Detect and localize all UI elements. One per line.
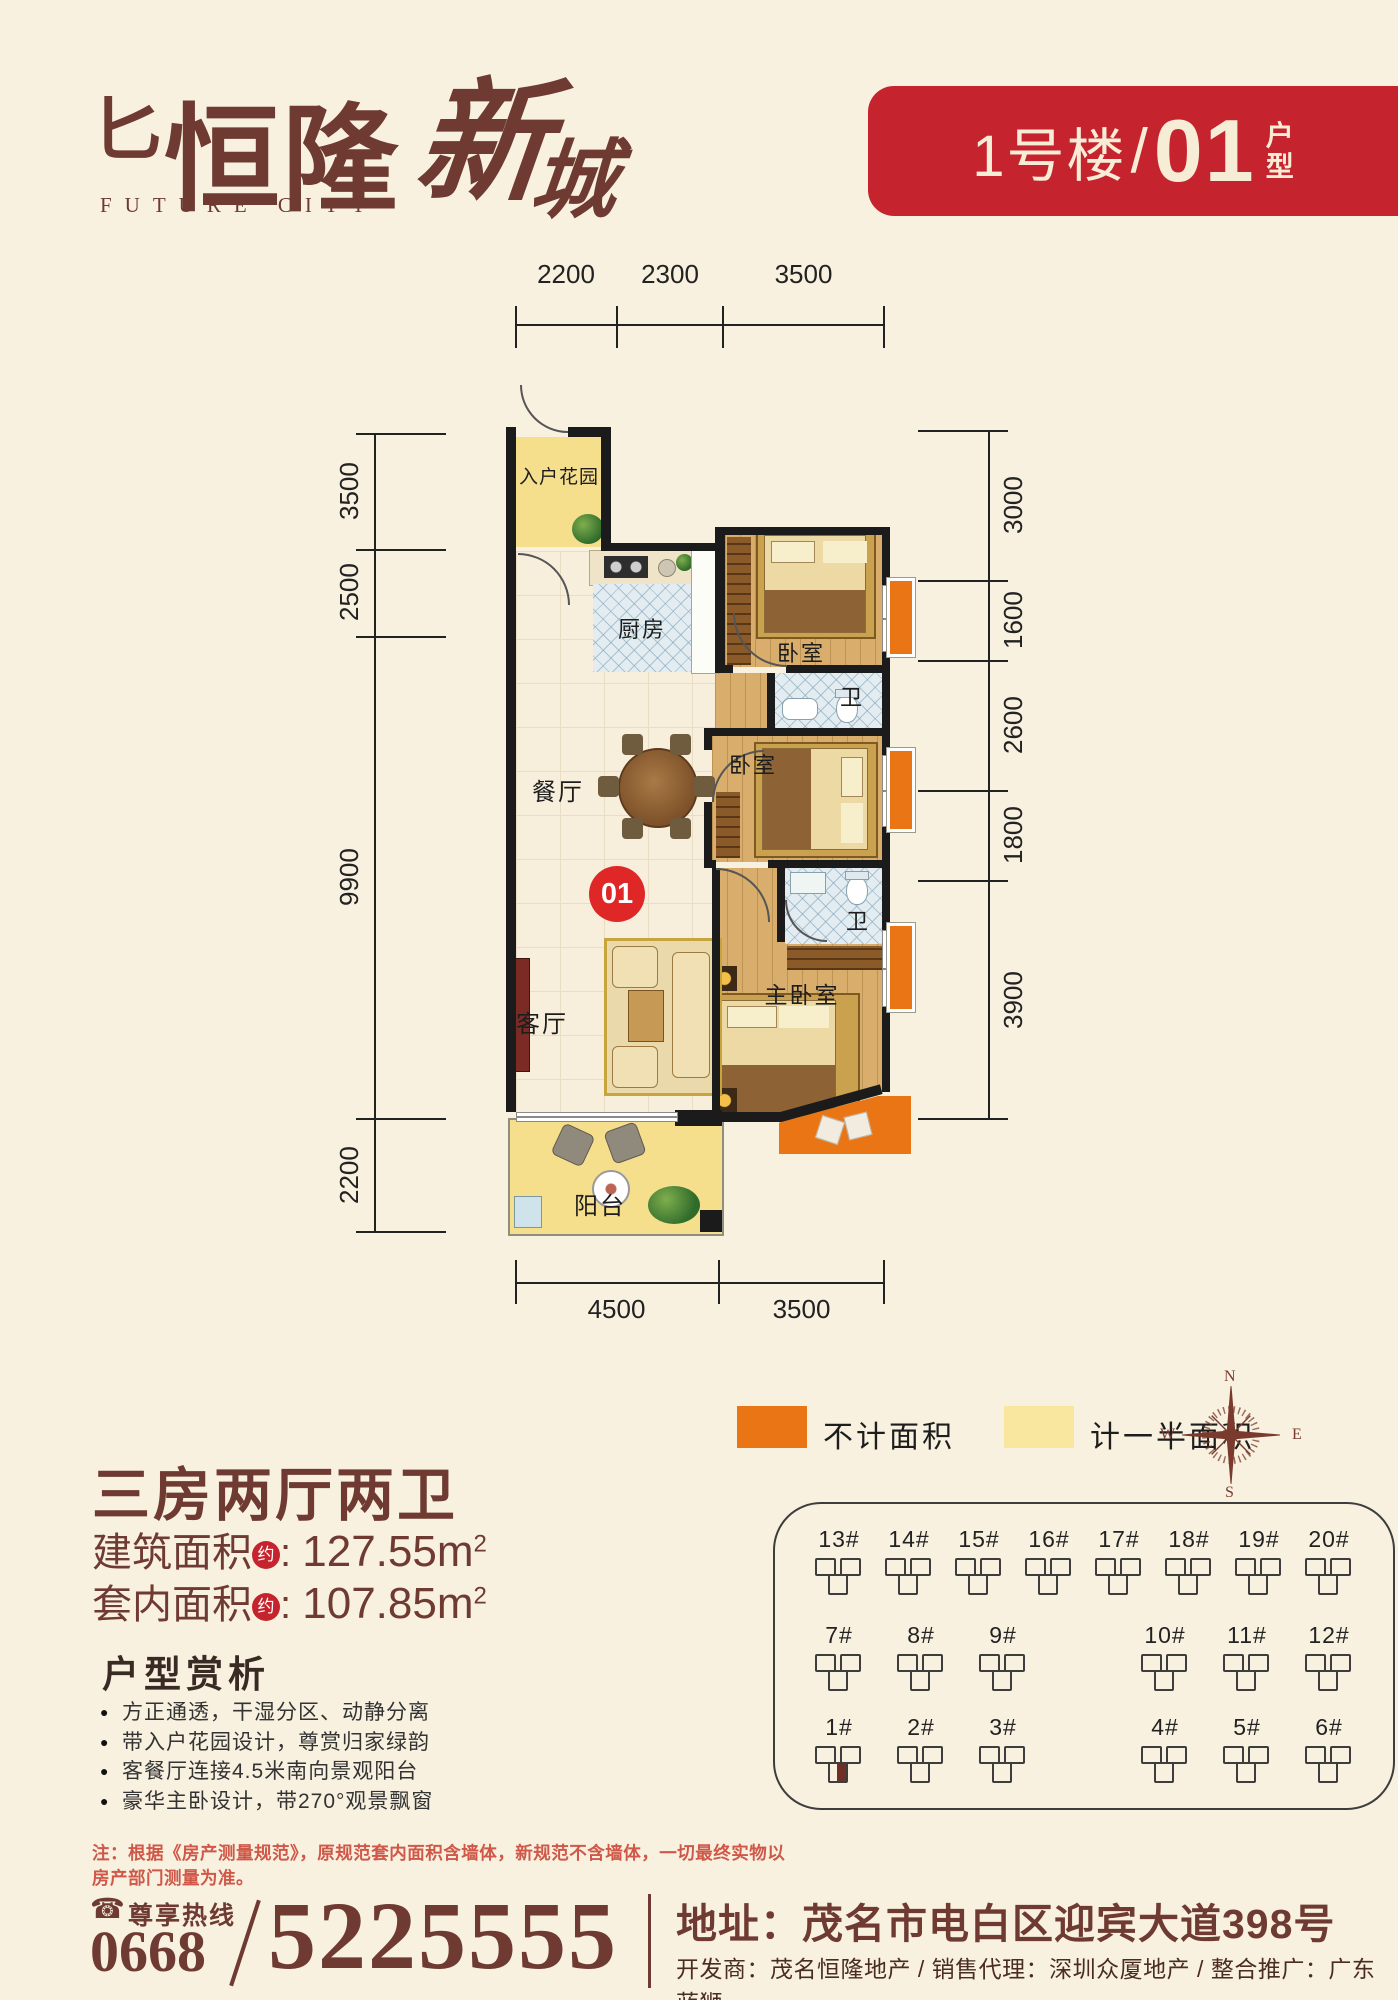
corridor-floor <box>715 673 767 728</box>
site-building: 2# <box>897 1714 945 1786</box>
legend-label-no-area: 不计面积 <box>823 1412 955 1456</box>
wall-segment <box>715 527 725 673</box>
dimension-value: 3500 <box>724 259 883 290</box>
sink-icon <box>658 559 676 577</box>
site-map-row-2: 7# 8# 9# 10# 11# 12# <box>815 1622 1353 1694</box>
wall-segment <box>712 1112 787 1122</box>
dimension-tick <box>722 306 724 348</box>
area-separator: : <box>280 1583 291 1627</box>
site-building: 13# <box>815 1526 863 1598</box>
legend-swatch-no-area <box>737 1406 807 1448</box>
wall-segment <box>715 665 733 673</box>
master-wardrobe <box>787 946 882 970</box>
dimension-tick <box>918 880 1008 882</box>
wall-segment <box>768 860 890 868</box>
room-label-bath-mid: 卫 <box>844 904 872 936</box>
armchair-icon <box>612 946 658 988</box>
building-label: 13# <box>818 1526 859 1553</box>
building-icon <box>1305 1558 1353 1598</box>
building-label: 4# <box>1151 1714 1179 1741</box>
building-icon <box>979 1654 1027 1694</box>
building-label: 15# <box>958 1526 999 1553</box>
dining-chair-icon <box>622 818 643 839</box>
building-icon <box>1305 1654 1353 1694</box>
area-line-built: 建筑面积约: 127.55m2 <box>92 1520 487 1578</box>
wall-segment <box>882 825 890 930</box>
wall-segment <box>704 860 716 868</box>
agencies-text: 开发商：茂名恒隆地产 / 销售代理：深圳众厦地产 / 整合推广：广东蓝狮 <box>676 1950 1398 2000</box>
wall-segment <box>704 736 712 750</box>
analysis-bullet: 方正通透，干湿分区、动静分离 <box>100 1698 520 1728</box>
dimension-line <box>515 1282 883 1284</box>
logo-script-char2: 城 <box>525 110 624 235</box>
approx-seal-icon: 约 <box>252 1593 280 1621</box>
legend-swatch-half-area <box>1004 1406 1074 1448</box>
dimension-value: 2200 <box>515 259 617 290</box>
site-building-group: 1# 2# 3# <box>815 1714 1027 1786</box>
dining-chair-icon <box>622 734 643 755</box>
dimension-tick <box>918 790 1008 792</box>
site-building: 16# <box>1025 1526 1073 1598</box>
analysis-bullet: 客餐厅连接4.5米南向景观阳台 <box>100 1757 520 1787</box>
building-icon <box>1141 1746 1189 1786</box>
analysis-bullets: 方正通透，干湿分区、动静分离 带入户花园设计，尊赏归家绿韵 客餐厅连接4.5米南… <box>100 1698 520 1816</box>
vanity-icon <box>790 872 826 894</box>
dimension-line <box>515 324 883 326</box>
building-icon <box>1095 1558 1143 1598</box>
area-label: 套内面积 <box>92 1583 252 1627</box>
site-map: 13# 14# 15# 16# 17# 18# 19# 20# 7# 8# 9#… <box>773 1502 1395 1810</box>
building-icon <box>815 1654 863 1694</box>
area-separator: : <box>280 1531 291 1575</box>
site-building-group: 4# 5# 6# <box>1141 1714 1353 1786</box>
analysis-bullet: 豪华主卧设计，带270°观景飘窗 <box>100 1787 520 1817</box>
compass-e-label: E <box>1292 1426 1302 1444</box>
unit-banner: 1号楼 / 01 户 型 <box>868 86 1398 216</box>
site-building-highlighted: 1# <box>815 1714 863 1786</box>
hotline-number: 5225555 <box>268 1880 618 1991</box>
banner-building-label: 1号楼 <box>972 109 1126 193</box>
compass: N S W E <box>1176 1368 1286 1500</box>
building-label: 6# <box>1315 1714 1343 1741</box>
dimension-tick <box>356 1231 446 1233</box>
building-icon <box>897 1746 945 1786</box>
wall-segment <box>715 527 890 535</box>
dimension-value: 2600 <box>1000 675 1026 775</box>
banner-suffix-bottom: 型 <box>1266 151 1294 182</box>
area-unit: m <box>437 1527 474 1576</box>
dimension-value: 3500 <box>720 1294 883 1325</box>
dimension-value: 3900 <box>1000 950 1026 1050</box>
bathtub-icon <box>782 698 818 720</box>
wall-segment <box>675 1110 722 1126</box>
dimension-tick <box>356 549 446 551</box>
master-bed-icon <box>720 1000 836 1116</box>
dining-chair-icon <box>670 818 691 839</box>
building-icon <box>815 1746 863 1786</box>
site-map-row-1: 13# 14# 15# 16# 17# 18# 19# 20# <box>815 1526 1353 1598</box>
compass-n-label: N <box>1224 1368 1236 1386</box>
site-building: 3# <box>979 1714 1027 1786</box>
sofa-icon <box>672 952 710 1078</box>
building-label: 7# <box>825 1622 853 1649</box>
building-icon <box>979 1746 1027 1786</box>
site-map-row-3: 1# 2# 3# 4# 5# 6# <box>815 1714 1353 1786</box>
dimension-tick <box>918 660 1008 662</box>
site-building: 20# <box>1305 1526 1353 1598</box>
balcony-plant-icon <box>648 1186 700 1224</box>
address-text: 地址：茂名市电白区迎宾大道398号 <box>676 1890 1335 1950</box>
building-label: 20# <box>1308 1526 1349 1553</box>
area-unit: m <box>437 1579 474 1628</box>
dimension-line <box>988 430 990 1120</box>
building-label: 11# <box>1227 1622 1267 1649</box>
room-label-balcony: 阳台 <box>564 1186 636 1221</box>
unit-number-badge: 01 <box>589 866 645 922</box>
dimension-value: 3000 <box>1000 455 1026 555</box>
armchair-icon <box>612 1046 658 1088</box>
room-label-garden: 入户花园 <box>514 462 604 489</box>
building-label: 10# <box>1144 1622 1185 1649</box>
banner-unit-suffix: 户 型 <box>1266 120 1294 182</box>
building-label: 12# <box>1308 1622 1349 1649</box>
building-label: 5# <box>1233 1714 1261 1741</box>
site-building: 12# <box>1305 1622 1353 1694</box>
logo-mark: ⼔ <box>92 74 162 175</box>
site-building: 10# <box>1141 1622 1189 1694</box>
building-icon <box>1223 1746 1271 1786</box>
dimension-tick <box>356 636 446 638</box>
area-label: 建筑面积 <box>92 1531 252 1575</box>
analysis-title: 户型赏析 <box>102 1644 270 1698</box>
building-icon <box>1305 1746 1353 1786</box>
area-line-inner: 套内面积约: 107.85m2 <box>92 1572 487 1630</box>
building-icon <box>897 1654 945 1694</box>
wall-segment <box>601 427 611 551</box>
dimension-tick <box>883 1260 885 1304</box>
building-icon <box>955 1558 1003 1598</box>
dimension-tick <box>356 433 446 435</box>
wall-segment <box>882 527 890 585</box>
dimension-line <box>374 433 376 1233</box>
room-label-living: 客厅 <box>506 1004 578 1039</box>
site-building: 17# <box>1095 1526 1143 1598</box>
toilet-icon <box>846 876 868 905</box>
bay-window-no-area <box>890 581 912 654</box>
site-building: 4# <box>1141 1714 1189 1786</box>
dimension-value: 1800 <box>1000 785 1026 885</box>
room-label-bedroom-top: 卧室 <box>766 636 836 668</box>
garden-plant-icon <box>572 514 604 544</box>
site-building: 15# <box>955 1526 1003 1598</box>
wall-segment <box>506 427 516 551</box>
building-label: 18# <box>1168 1526 1209 1553</box>
building-icon <box>1165 1558 1213 1598</box>
site-building: 18# <box>1165 1526 1213 1598</box>
dimension-tick <box>356 1118 446 1120</box>
logo-subtitle: FUTURE CITY <box>100 193 379 218</box>
dimension-tick <box>918 1118 1008 1120</box>
dimension-value: 2500 <box>336 542 362 642</box>
building-label: 19# <box>1238 1526 1279 1553</box>
area-value: 127.55 <box>302 1527 437 1576</box>
dimension-value: 3500 <box>336 441 362 541</box>
entry-door-arc <box>520 385 568 433</box>
dimension-value: 9900 <box>336 827 362 927</box>
building-label: 9# <box>989 1622 1017 1649</box>
banner-unit-number: 01 <box>1154 100 1256 202</box>
window-icon <box>516 1112 678 1122</box>
wall-segment <box>882 1005 890 1092</box>
dimension-tick <box>883 306 885 348</box>
building-label: 14# <box>888 1526 929 1553</box>
dimension-tick <box>616 306 618 348</box>
washer-icon <box>514 1196 542 1228</box>
site-building: 14# <box>885 1526 933 1598</box>
footer-divider <box>648 1894 651 1988</box>
building-icon <box>815 1558 863 1598</box>
dimension-value: 2300 <box>618 259 722 290</box>
flyer-page: ⼔ 恒隆 新 城 FUTURE CITY 1号楼 / 01 户 型 <box>0 0 1398 2000</box>
building-label: 8# <box>907 1622 935 1649</box>
room-label-bedroom-mid: 卧室 <box>718 748 788 780</box>
dimension-tick <box>918 580 1008 582</box>
room-label-master: 主卧室 <box>752 976 852 1010</box>
wall-segment <box>777 868 785 942</box>
building-label: 17# <box>1098 1526 1139 1553</box>
analysis-bullet: 带入户花园设计，尊赏归家绿韵 <box>100 1728 520 1758</box>
room-label-bath-top: 卫 <box>838 680 866 712</box>
site-building: 9# <box>979 1622 1027 1694</box>
hotline-area-code: 0668 <box>90 1918 206 1985</box>
building-label: 1# <box>825 1714 853 1741</box>
area-unit-sup: 2 <box>473 1583 486 1610</box>
dining-chair-icon <box>670 734 691 755</box>
building-label: 16# <box>1028 1526 1069 1553</box>
wall-segment <box>704 802 712 868</box>
bay-window-no-area <box>890 926 912 1009</box>
dining-table-icon <box>618 748 698 828</box>
unit-number-badge-text: 01 <box>601 878 633 911</box>
compass-s-label: S <box>1225 1484 1234 1502</box>
wall-segment <box>700 1210 722 1232</box>
area-value: 107.85 <box>302 1579 437 1628</box>
site-building-group: 10# 11# 12# <box>1141 1622 1353 1694</box>
dimension-tick <box>515 306 517 348</box>
building-icon <box>1141 1654 1189 1694</box>
building-icon <box>1235 1558 1283 1598</box>
compass-w-label: W <box>1160 1426 1175 1444</box>
area-unit-sup: 2 <box>473 1531 486 1558</box>
site-building-group: 7# 8# 9# <box>815 1622 1027 1694</box>
building-label: 2# <box>907 1714 935 1741</box>
building-icon <box>885 1558 933 1598</box>
stove-icon <box>604 556 648 578</box>
site-building: 8# <box>897 1622 945 1694</box>
dimension-tick <box>918 430 1008 432</box>
compass-rose-icon <box>1176 1380 1286 1490</box>
wall-segment <box>767 673 775 728</box>
site-building: 7# <box>815 1622 863 1694</box>
wall-segment <box>601 543 723 551</box>
wall-segment <box>882 650 890 755</box>
site-building: 5# <box>1223 1714 1271 1786</box>
logo: ⼔ 恒隆 新 城 FUTURE CITY <box>88 36 648 236</box>
site-building: 19# <box>1235 1526 1283 1598</box>
room-label-kitchen: 厨房 <box>606 612 678 644</box>
banner-slash: / <box>1131 116 1148 187</box>
building-icon <box>1223 1654 1271 1694</box>
dimension-value: 2200 <box>336 1125 362 1225</box>
building-label: 3# <box>989 1714 1017 1741</box>
site-building: 11# <box>1223 1622 1271 1694</box>
coffee-table-icon <box>628 990 664 1042</box>
bay-window-no-area <box>890 751 912 829</box>
banner-suffix-top: 户 <box>1266 120 1294 151</box>
dimension-value: 1600 <box>1000 570 1026 670</box>
site-building: 6# <box>1305 1714 1353 1786</box>
room-label-dining: 餐厅 <box>522 772 594 807</box>
wall-segment <box>704 728 890 736</box>
building-icon <box>1025 1558 1073 1598</box>
dimension-value: 4500 <box>515 1294 718 1325</box>
dining-chair-icon <box>598 776 619 797</box>
approx-seal-icon: 约 <box>252 1541 280 1569</box>
